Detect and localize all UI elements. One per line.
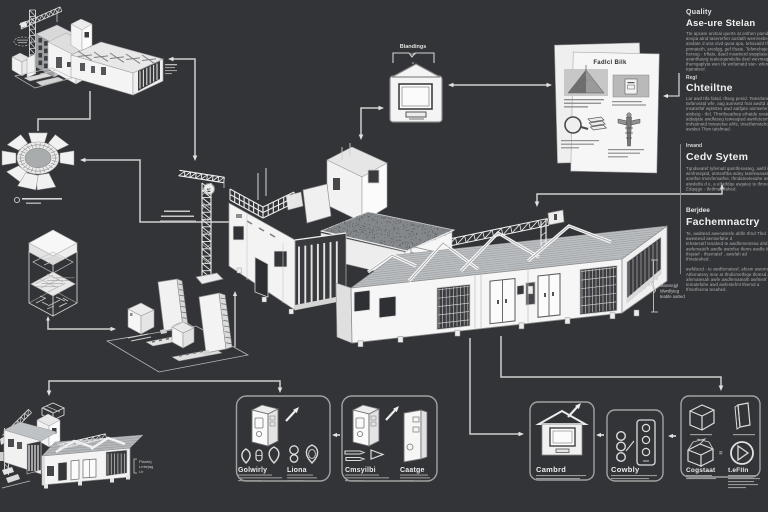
- svg-text:Quality: Quality: [686, 9, 712, 16]
- svg-text:Ase-ure Stelan: Ase-ure Stelan: [686, 18, 755, 29]
- svg-text:Regl: Regl: [686, 75, 697, 81]
- svg-text:tqanateur.: tqanateur.: [686, 67, 706, 72]
- svg-text:Cmsyilbi: Cmsyilbi: [345, 467, 376, 474]
- svg-text:Blandings: Blandings: [400, 44, 427, 50]
- svg-text:teatrle oatred: teatrle oatred: [660, 294, 685, 299]
- svg-text:Cedv Sytem: Cedv Sytem: [686, 151, 748, 163]
- svg-text:Chteiltne: Chteiltne: [686, 82, 733, 94]
- svg-text:Berjdee: Berjdee: [686, 207, 710, 214]
- svg-text:Edqejge - tfetfmatefahed.: Edqejge - tfetfmatefahed.: [686, 186, 737, 191]
- svg-text:Manvtejgl: Manvtejgl: [660, 283, 678, 288]
- svg-text:Ur: Ur: [139, 469, 144, 474]
- svg-text:tfmateahed.: tfmateahed.: [686, 257, 710, 262]
- svg-text:Irwand: Irwand: [686, 143, 702, 149]
- svg-text:Fachemnactry: Fachemnactry: [686, 216, 760, 228]
- svg-text:Liona: Liona: [287, 467, 307, 474]
- svg-text:site: site: [410, 51, 417, 56]
- svg-text:Cambrd: Cambrd: [536, 465, 566, 474]
- svg-text:t.eFlln: t.eFlln: [728, 467, 749, 474]
- svg-text:awsbet Tfwn tatsfmad.: awsbet Tfwn tatsfmad.: [686, 127, 731, 132]
- svg-text:Cowbly: Cowbly: [611, 465, 640, 474]
- svg-text:=: =: [719, 451, 723, 457]
- svg-text:Golwirly: Golwirly: [238, 467, 267, 474]
- svg-text:Idwrdlyteg: Idwrdlyteg: [660, 289, 680, 294]
- svg-text:Cogstaat: Cogstaat: [686, 467, 716, 474]
- svg-text:Caatge: Caatge: [400, 467, 425, 474]
- svg-text:Fadlcl Bilk: Fadlcl Bilk: [593, 60, 627, 66]
- svg-text:tfmetfsema tesahed.: tfmetfsema tesahed.: [686, 287, 727, 292]
